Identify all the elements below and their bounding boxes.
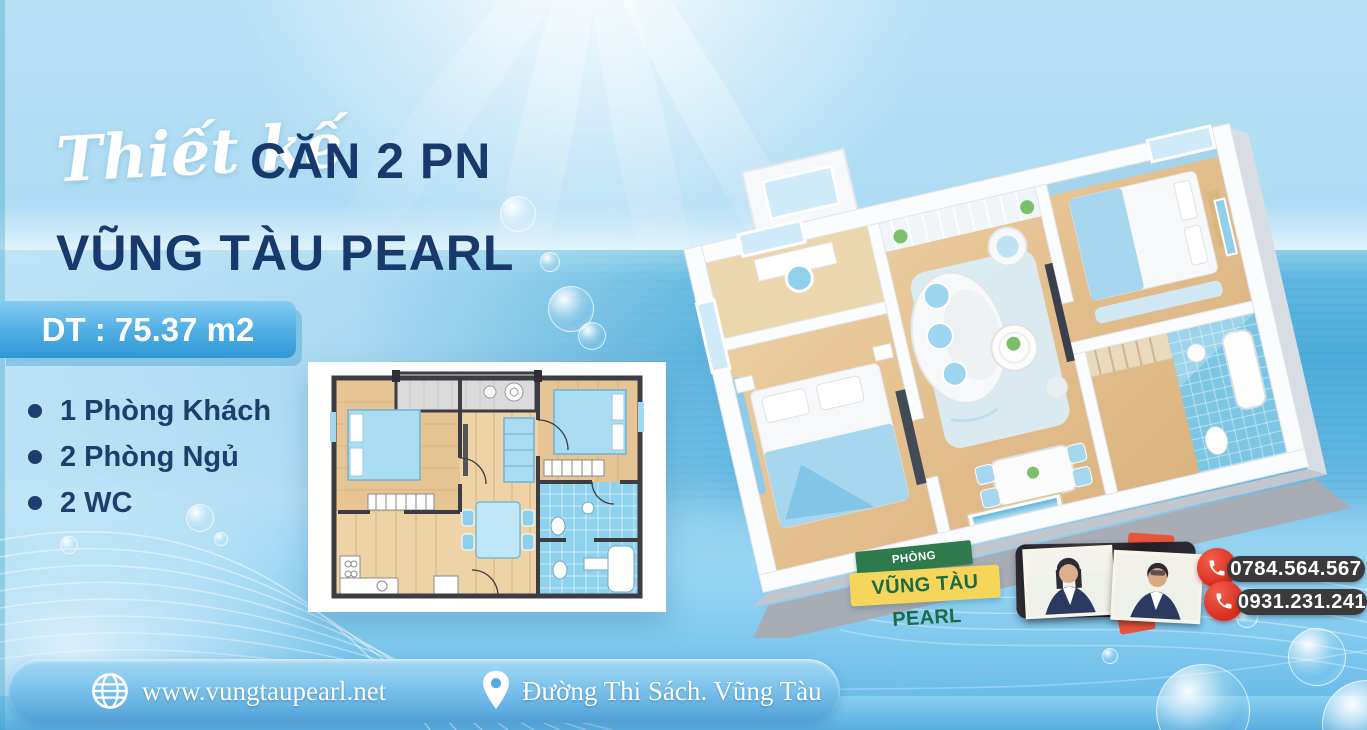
page-title-line1: CĂN 2 PN — [250, 132, 491, 190]
bubble — [214, 532, 228, 546]
floor-plan-image — [308, 362, 666, 612]
globe-icon — [88, 669, 132, 713]
phone-number: 0931.231.241 — [1237, 589, 1367, 615]
feature-item: 2 WC — [20, 480, 271, 526]
male-agent-photo — [1110, 550, 1204, 625]
female-agent-photo — [1022, 545, 1116, 620]
feature-label: 2 Phòng Ngủ — [60, 441, 239, 474]
bullet-dot-icon — [28, 496, 42, 510]
bubble — [60, 536, 78, 554]
poster: Thiết kế CĂN 2 PN VŨNG TÀU PEARL DT : 75… — [0, 0, 1367, 730]
bullet-dot-icon — [28, 450, 42, 464]
feature-item: 2 Phòng Ngủ — [20, 434, 271, 480]
website-link[interactable]: www.vungtaupearl.net — [142, 659, 386, 723]
phone-number: 0784.564.567 — [1227, 556, 1365, 582]
bubble — [1102, 648, 1118, 664]
feature-label: 2 WC — [60, 487, 133, 520]
address-text: Đường Thi Sách. Vũng Tàu — [522, 659, 822, 723]
page-title-line2: VŨNG TÀU PEARL — [56, 224, 514, 282]
bubble — [540, 252, 560, 272]
feature-label: 1 Phòng Khách — [60, 395, 271, 428]
phone-number-button[interactable]: 0931.231.241 — [1204, 581, 1367, 621]
footer-bar: www.vungtaupearl.net Đường Thi Sách. Vũn… — [8, 659, 840, 723]
location-pin-icon — [478, 668, 514, 714]
feature-item: 1 Phòng Khách — [20, 388, 271, 434]
bullet-dot-icon — [28, 404, 42, 418]
feature-list: 1 Phòng Khách 2 Phòng Ngủ 2 WC — [20, 388, 271, 526]
area-badge: DT : 75.37 m2 — [0, 301, 296, 358]
bubble — [578, 322, 606, 350]
